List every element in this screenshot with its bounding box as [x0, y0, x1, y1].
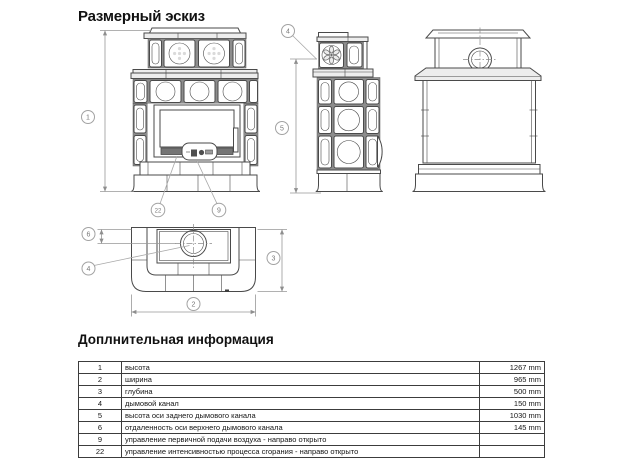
row-number: 5	[79, 410, 122, 422]
table-row: 4 дымовой канал 150 mm	[79, 398, 545, 410]
row-description: дымовой канал	[122, 398, 480, 410]
callout-4-side-label: 4	[286, 28, 290, 35]
row-description: высота	[122, 362, 480, 374]
table-row: 2 ширина 965 mm	[79, 374, 545, 386]
row-number: 3	[79, 386, 122, 398]
table-row: 5 высота оси заднего дымового канала 103…	[79, 410, 545, 422]
callout-3-label: 3	[272, 255, 276, 262]
row-number: 9	[79, 434, 122, 446]
row-description: ширина	[122, 374, 480, 386]
row-value: 150 mm	[480, 398, 545, 410]
info-table: 1 высота 1267 mm 2 ширина 965 mm 3 глуби…	[78, 361, 545, 458]
front-view	[131, 28, 260, 192]
row-description: управление первичной подачи воздуха - на…	[122, 434, 480, 446]
row-value: 500 mm	[480, 386, 545, 398]
info-title: Доплнительная информация	[78, 332, 274, 347]
row-value: 965 mm	[480, 374, 545, 386]
row-description: управление интенсивностью процесса сгора…	[122, 446, 480, 458]
table-row: 9 управление первичной подачи воздуха - …	[79, 434, 545, 446]
row-number: 6	[79, 422, 122, 434]
callout-4-plan-label: 4	[87, 266, 91, 273]
callout-6-label: 6	[87, 231, 91, 238]
row-number: 22	[79, 446, 122, 458]
callout-2-label: 2	[192, 301, 196, 308]
table-row: 6 отдаленность оси верхнего дымового кан…	[79, 422, 545, 434]
row-value	[480, 446, 545, 458]
dimensional-drawing: 1 22 9 4 5 6 4	[0, 0, 624, 330]
air-control-device	[182, 143, 217, 160]
table-row: 22 управление интенсивностью процесса сг…	[79, 446, 545, 458]
callout-5-label: 5	[280, 125, 284, 132]
side-view	[313, 33, 383, 192]
row-value	[480, 434, 545, 446]
row-description: глубина	[122, 386, 480, 398]
row-number: 2	[79, 374, 122, 386]
callout-1-label: 1	[86, 114, 90, 121]
row-number: 1	[79, 362, 122, 374]
plan-view	[132, 224, 256, 292]
row-value: 1030 mm	[480, 410, 545, 422]
row-number: 4	[79, 398, 122, 410]
row-value: 1267 mm	[480, 362, 545, 374]
table-row: 1 высота 1267 mm	[79, 362, 545, 374]
row-description: высота оси заднего дымового канала	[122, 410, 480, 422]
rear-view	[413, 28, 546, 192]
callout-9-label: 9	[217, 207, 221, 214]
table-row: 3 глубина 500 mm	[79, 386, 545, 398]
callout-22-label: 22	[155, 208, 162, 214]
row-value: 145 mm	[480, 422, 545, 434]
smoke-channel-rosette	[320, 43, 344, 68]
dimensional-sketch-page: Размерный эскиз	[0, 0, 624, 460]
row-description: отдаленность оси верхнего дымового канал…	[122, 422, 480, 434]
